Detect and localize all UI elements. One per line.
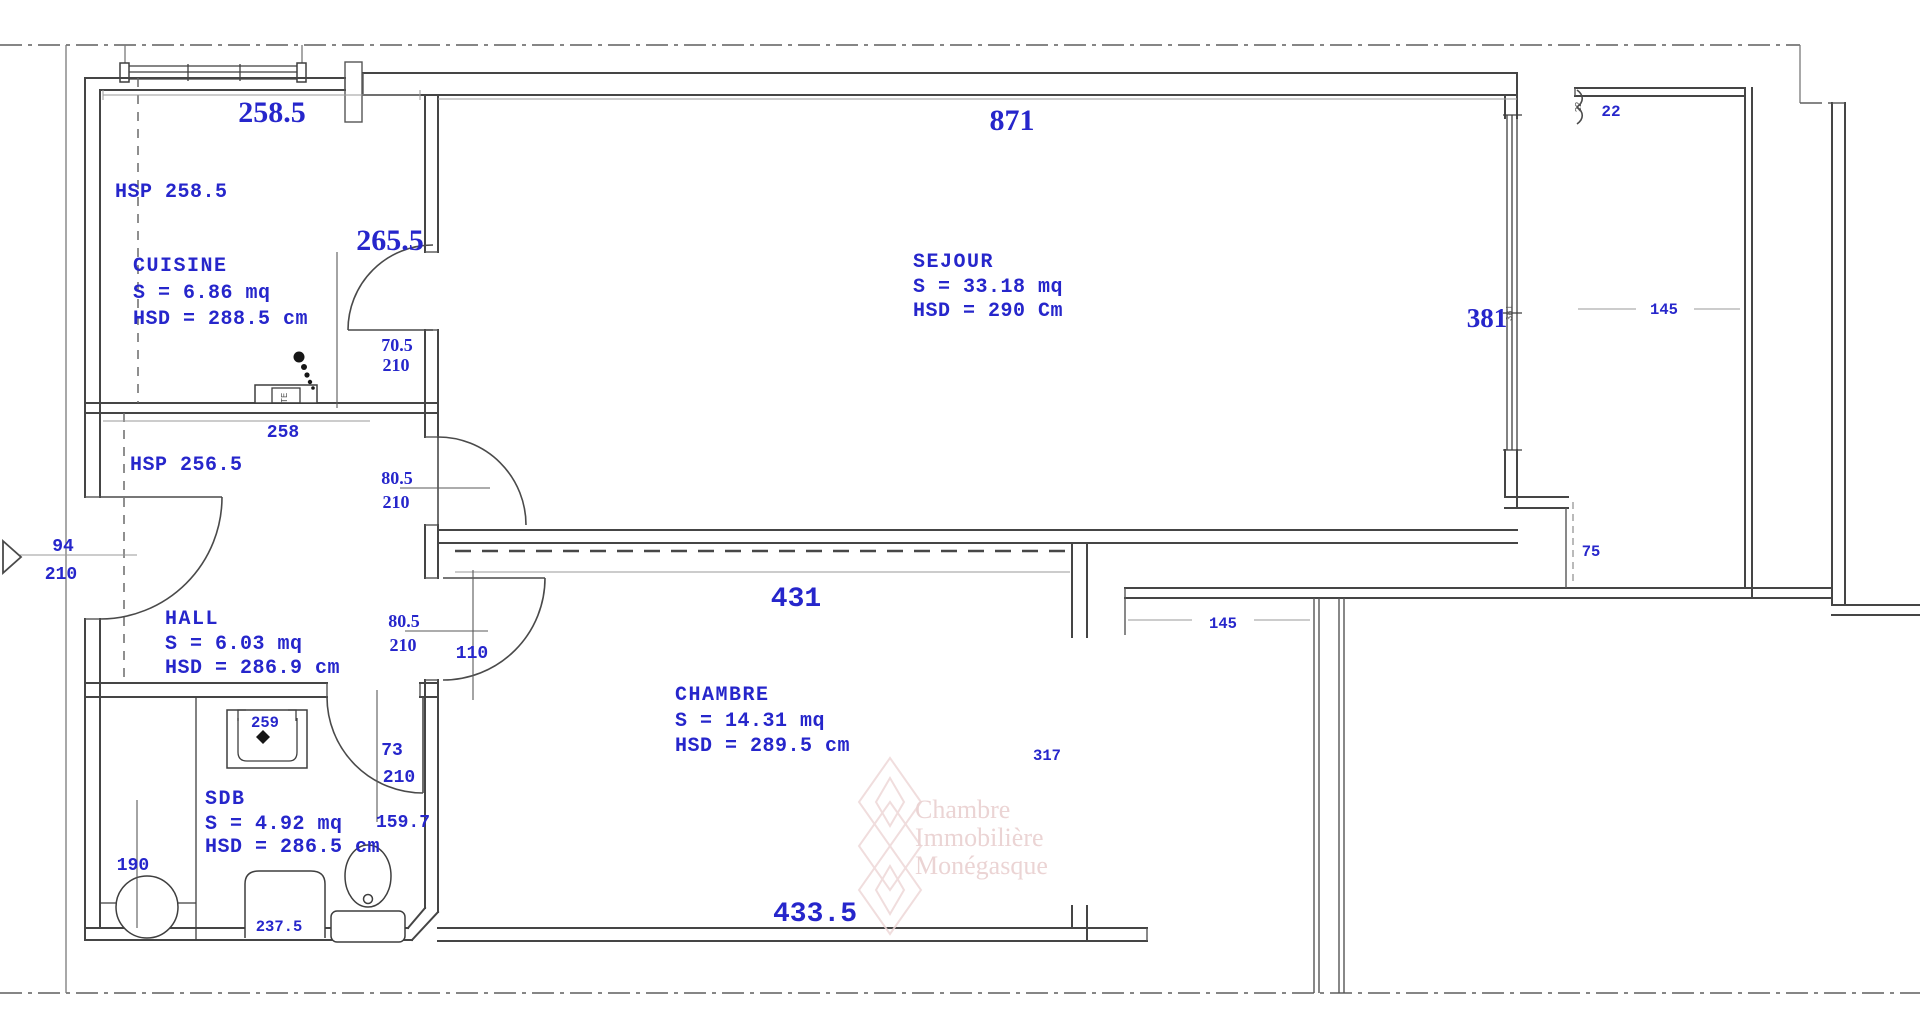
toilet-icon [331,845,405,942]
dim-sdb-diag: 159.7 [376,813,430,833]
dim-terrace-width: 145 [1209,615,1237,633]
entrance-door-icon [100,497,222,619]
dim-entry-door-w: 94 [52,537,74,557]
dim-sejour-window-small: 381 [1505,305,1515,321]
dim-chambre-door-h: 210 [390,635,417,655]
room-sdb-name: SDB [205,788,246,811]
dim-niche: 110 [456,644,488,664]
dim-kitchen-door-w: 70.5 [381,335,413,355]
dim-kitchen-height: 265.5 [356,224,424,257]
watermark-line3: Monégasque [915,851,1048,880]
dim-sejour-door-h: 210 [383,492,410,512]
room-hall-hsd: HSD = 286.9 cm [165,657,340,680]
dim-sejour-width: 871 [990,104,1035,137]
ceiling-dashed-lines [124,78,1070,683]
floorplan-drawing: Chambre Immobilière Monégasque 258.5 265… [0,0,1920,1019]
dim-sdb-width: 190 [117,856,149,876]
kitchen-door-icon [348,245,433,330]
dim-balcony-75: 75 [1582,543,1601,561]
dim-entry-door-h: 210 [45,565,77,585]
dim-basin: 259 [251,714,279,732]
dim-balcony-width: 145 [1650,301,1678,319]
watermark-line1: Chambre [915,795,1010,824]
dimension-lines [18,90,1740,928]
dim-sdb-door-h: 210 [383,768,415,788]
watermark-line2: Immobilière [915,823,1044,852]
dim-sdb-length: 237.5 [256,918,303,936]
room-sdb-area: S = 4.92 mq [205,813,343,836]
room-sejour-hsd: HSD = 290 Cm [913,300,1063,323]
kitchen-window [120,45,306,82]
room-sejour-area: S = 33.18 mq [913,276,1063,299]
dim-sejour-window: 381 [1467,303,1508,333]
room-chambre-area: S = 14.31 mq [675,710,825,733]
room-sdb-hsd: HSD = 286.5 cm [205,836,380,859]
dim-chambre-top-width: 431 [771,584,821,615]
room-cuisine-area: S = 6.86 mq [133,282,271,305]
room-cuisine-hsd: HSD = 288.5 cm [133,308,308,331]
dim-sejour-door-w: 80.5 [381,468,413,488]
watermark: Chambre Immobilière Monégasque [859,758,1048,934]
room-hall-name: HALL [165,608,219,631]
dim-sdb-door-w: 73 [381,741,403,761]
room-chambre-hsd: HSD = 289.5 cm [675,735,850,758]
room-cuisine-hsp: HSP 258.5 [115,181,228,204]
room-hall-hsp: HSP 256.5 [130,454,243,477]
dim-wall-22: 22 [1601,103,1620,121]
dim-22-small: 22 [1574,102,1584,113]
dim-chambre-bottom-width: 433.5 [773,899,857,930]
chambre-door-icon [443,578,545,680]
hall-sejour-door-icon [438,437,526,525]
dim-kitchen-door-h: 210 [383,355,410,375]
dim-kitchen-width: 258.5 [238,96,306,129]
entrance-arrow-icon [3,541,21,573]
floorplan-page: Chambre Immobilière Monégasque 258.5 265… [0,0,1920,1019]
room-cuisine-name: CUISINE [133,255,228,278]
sink-te-mark: TE [280,393,290,404]
room-sejour-name: SEJOUR [913,251,994,274]
dim-hall-width: 258 [267,423,299,443]
room-chambre-name: CHAMBRE [675,684,770,707]
room-hall-area: S = 6.03 mq [165,633,303,656]
dim-chambre-door-w: 80.5 [388,611,420,631]
dim-chambre-window: 317 [1033,747,1061,765]
washbasin-icon [116,876,178,938]
